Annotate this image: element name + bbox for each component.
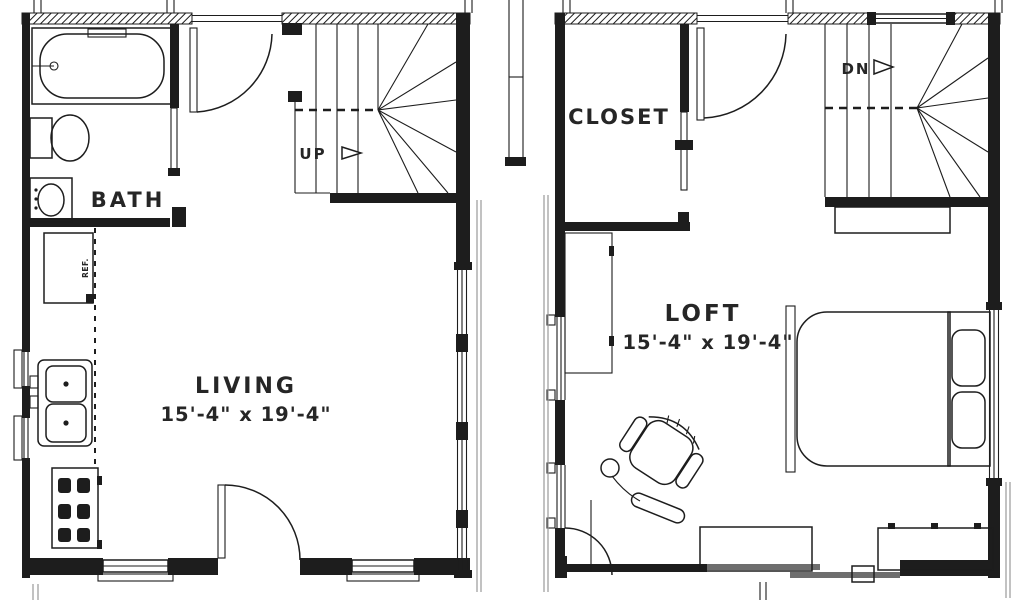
sf-windows (544, 12, 1002, 592)
ff-staircase: UP (282, 23, 470, 203)
bed-mattress (797, 312, 950, 466)
sf-exterior-walls (555, 13, 1000, 578)
sf-armchair (613, 399, 715, 497)
between-plans-lines (505, 0, 526, 166)
bathroom-door-leaf (168, 108, 180, 176)
roof-tick-marks (33, 0, 1010, 600)
kitchen-range (52, 468, 102, 549)
refrigerator: REF. (44, 233, 94, 303)
living-dimensions: 15'-4" x 19'-4" (160, 403, 331, 426)
closet-shelving (565, 233, 614, 373)
bathroom-vanity-sink (30, 178, 72, 222)
bed-pillow (952, 330, 985, 386)
loft-dimensions: 15'-4" x 19'-4" (622, 331, 793, 354)
refrigerator-label: REF. (81, 258, 90, 278)
kitchen-sink (30, 360, 92, 446)
ff-kitchen: REF. (30, 228, 102, 549)
ff-doors (190, 28, 300, 560)
first-floor-plan: REF. (14, 13, 481, 592)
sf-bed (786, 306, 990, 472)
closet-label: CLOSET (568, 105, 670, 129)
dn-label: DN (841, 60, 870, 78)
sf-top-door (697, 28, 786, 120)
bathtub (32, 28, 172, 104)
second-floor-plan: DN (544, 12, 1002, 592)
toilet (30, 115, 89, 161)
stair-rail (835, 207, 950, 233)
closet-door-leaf (675, 112, 693, 190)
floor-plan-drawing: REF. (0, 0, 1024, 600)
sf-staircase: DN (825, 24, 1000, 233)
floor-plan-page: REF. (0, 0, 1024, 600)
loft-label: LOFT (665, 301, 742, 327)
ff-bottom-entry-door (218, 485, 300, 560)
dn-arrow-icon (874, 60, 893, 74)
bath-label: BATH (91, 188, 166, 212)
ff-top-entry-door (190, 28, 272, 112)
up-label: UP (299, 145, 326, 163)
bed-pillow (952, 392, 985, 448)
living-label: LIVING (195, 374, 297, 399)
sf-corner-door (565, 500, 612, 575)
